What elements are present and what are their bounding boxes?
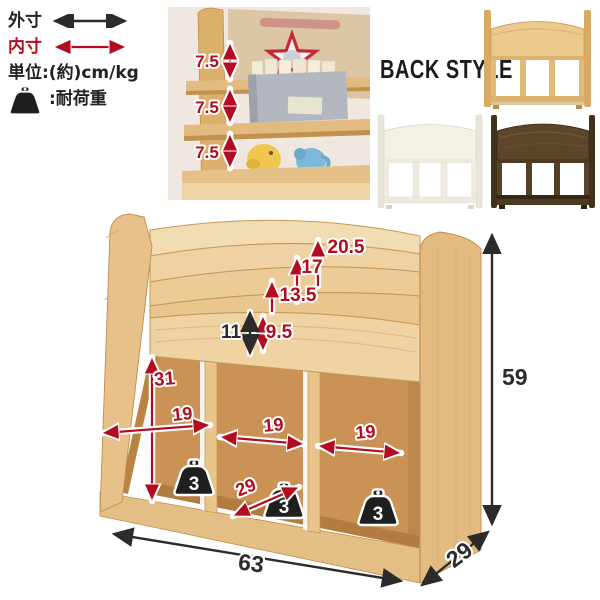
label-pocket-9-5: 9.5 [266, 322, 293, 343]
label-overall-height-59: 59 [502, 364, 528, 390]
shelf-unit-illustration [100, 214, 481, 583]
main-dimension-diagram: 3 3 3 [0, 0, 600, 600]
light-gap-2 [303, 370, 308, 531]
label-step-13-5: 13.5 [280, 285, 317, 306]
label-width-1: 19 [171, 403, 193, 425]
compartment-divider-2 [308, 371, 320, 533]
label-step-17: 17 [301, 257, 322, 278]
left-side-panel [100, 214, 152, 512]
label-overall-width-63: 63 [237, 548, 266, 577]
label-compartment-height-31: 31 [153, 368, 176, 391]
load-capacity-value-2: 3 [279, 497, 290, 518]
label-width-2: 19 [263, 414, 285, 436]
right-side-panel [420, 232, 481, 583]
load-capacity-value-1: 3 [189, 474, 200, 495]
load-capacity-value-3: 3 [373, 504, 384, 525]
label-step-20-5: 20.5 [328, 237, 365, 258]
label-width-3: 19 [355, 421, 377, 443]
label-rail-11: 11 [221, 322, 242, 343]
product-dimension-infographic: 外寸 内寸 単位:(約)cm/kg :耐荷重 [0, 0, 600, 600]
interior-right-shade [408, 381, 420, 548]
